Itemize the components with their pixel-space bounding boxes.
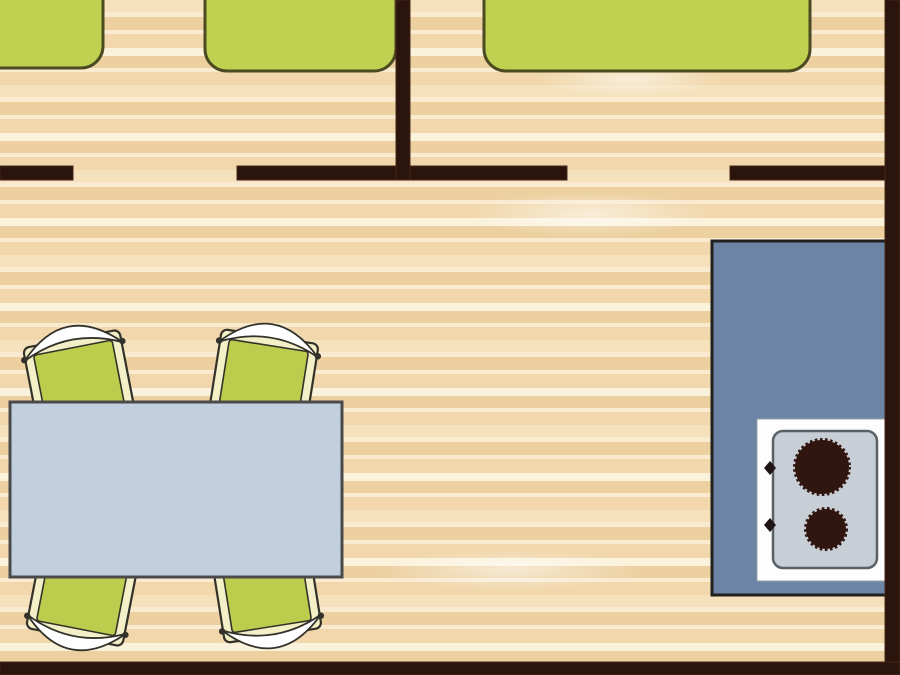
bed-left	[0, 0, 103, 68]
bed-double	[484, 0, 810, 71]
burner-small	[806, 509, 846, 549]
floor-plan	[0, 0, 900, 675]
burner-large	[795, 440, 849, 494]
wall-right	[885, 0, 900, 675]
dining-table	[10, 402, 342, 577]
bed-middle	[205, 0, 396, 71]
wall-bedroom-divider	[396, 0, 410, 180]
floor-plan-svg	[0, 0, 900, 675]
stove	[757, 419, 887, 581]
wall-top-left-segment	[0, 166, 73, 180]
wall-bottom	[0, 662, 900, 675]
wall-top-right-segment	[730, 166, 900, 180]
